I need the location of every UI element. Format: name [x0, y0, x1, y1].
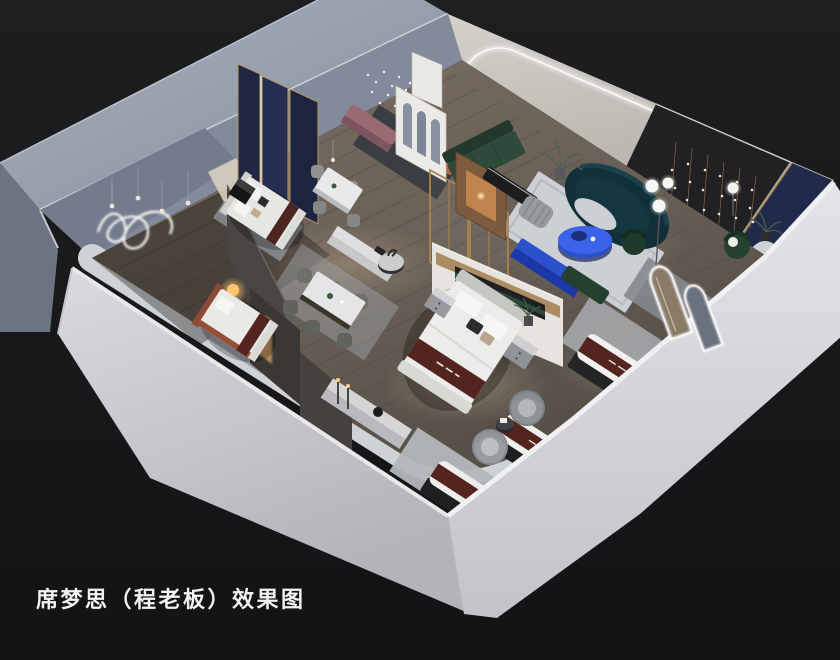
table-plant: [332, 184, 337, 189]
rendering-canvas: [0, 0, 840, 660]
caption-title: 席梦思（程老板）效果图: [36, 582, 306, 614]
green-chair-pillow: [724, 233, 750, 259]
blue-oval-table: [558, 226, 612, 262]
green-accent-chair-lounge: [622, 231, 646, 255]
side-table-small: [496, 418, 514, 433]
rendering-stage: 席梦思（程老板）效果图: [0, 0, 840, 660]
